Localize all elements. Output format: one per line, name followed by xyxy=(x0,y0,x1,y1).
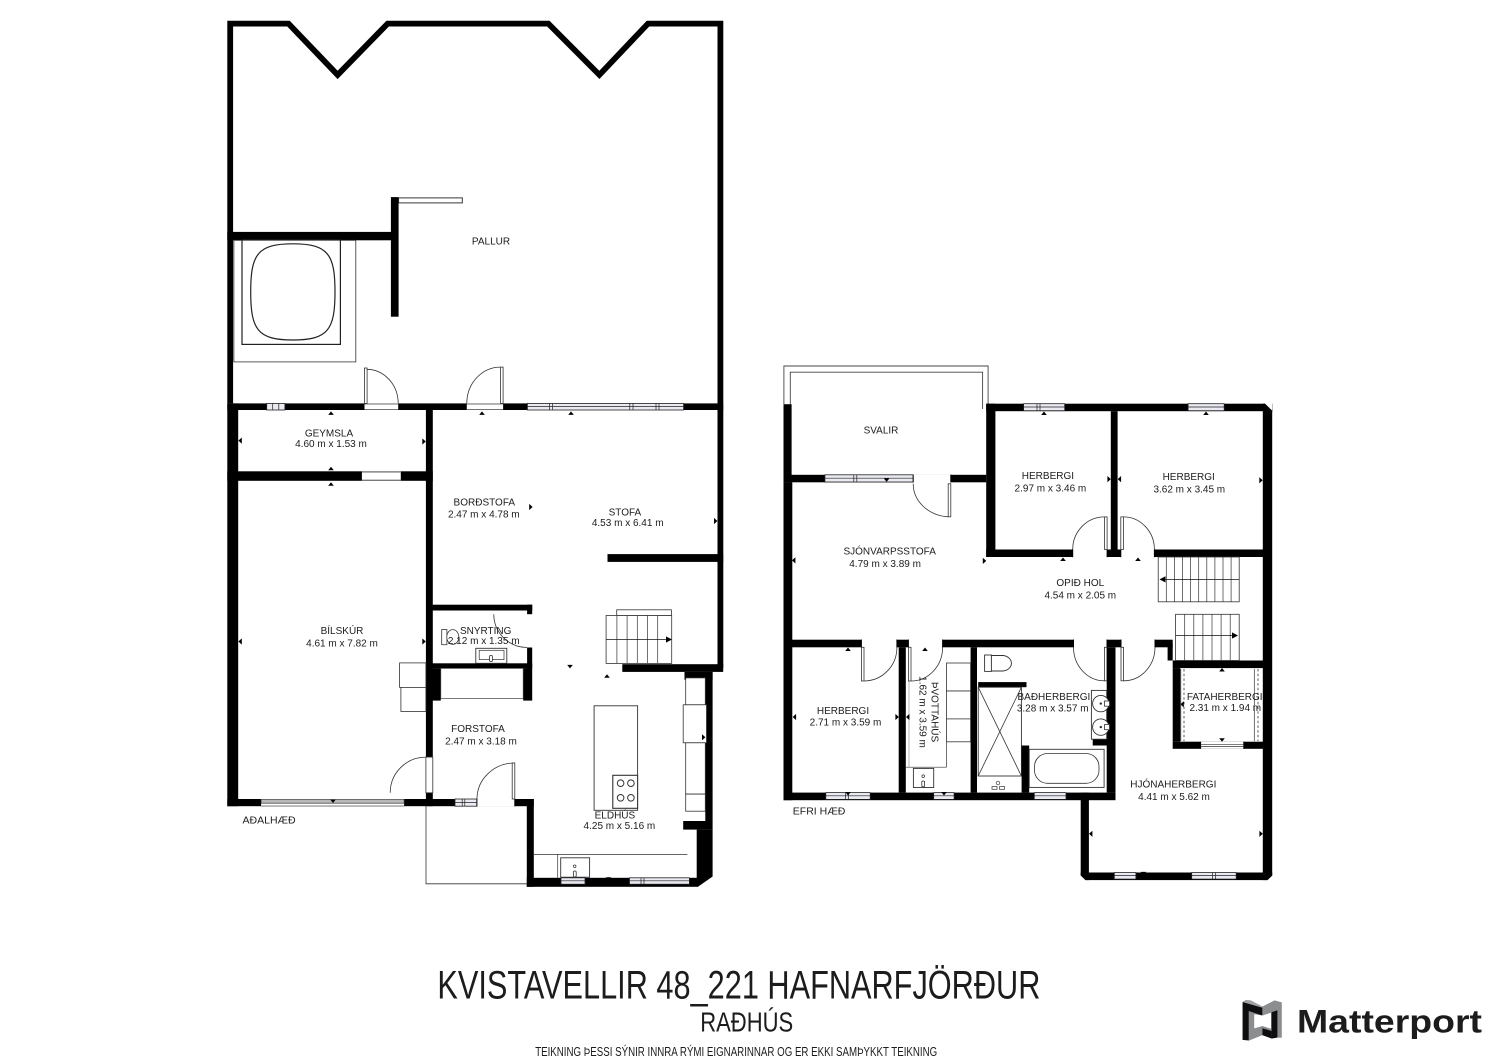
svg-text:4.79 m x 3.89 m: 4.79 m x 3.89 m xyxy=(849,559,921,570)
svg-text:2.47 m x 3.18 m: 2.47 m x 3.18 m xyxy=(445,737,517,748)
svg-text:HERBERGI: HERBERGI xyxy=(1022,471,1074,482)
svg-text:SJÓNVARPSSTOFA: SJÓNVARPSSTOFA xyxy=(843,545,936,558)
svg-text:2.12 m x 1.35 m: 2.12 m x 1.35 m xyxy=(448,636,520,647)
svg-text:4.54 m x 2.05 m: 4.54 m x 2.05 m xyxy=(1044,591,1116,602)
svg-text:4.53 m x 6.41 m: 4.53 m x 6.41 m xyxy=(592,518,664,529)
svg-text:GEYMSLA: GEYMSLA xyxy=(305,428,354,439)
svg-text:FORSTOFA: FORSTOFA xyxy=(451,724,505,735)
svg-text:4.41 m x 5.62 m: 4.41 m x 5.62 m xyxy=(1138,792,1210,803)
svg-text:FATAHERBERGI: FATAHERBERGI xyxy=(1187,692,1263,703)
svg-text:HJÓNAHERBERGI: HJÓNAHERBERGI xyxy=(1130,778,1216,791)
svg-text:2.97 m x 3.46 m: 2.97 m x 3.46 m xyxy=(1015,483,1087,494)
svg-text:OPIÐ HOL: OPIÐ HOL xyxy=(1056,578,1104,589)
svg-text:2.47 m x 4.78 m: 2.47 m x 4.78 m xyxy=(448,509,520,520)
svg-text:Matterport: Matterport xyxy=(1297,1003,1482,1039)
svg-text:BAÐHERBERGI: BAÐHERBERGI xyxy=(1018,692,1091,703)
svg-text:ELDHÚS: ELDHÚS xyxy=(595,808,636,821)
svg-text:RAÐHÚS: RAÐHÚS xyxy=(700,1006,793,1037)
svg-text:SVALIR: SVALIR xyxy=(864,426,899,437)
svg-text:BÍLSKÚR: BÍLSKÚR xyxy=(321,624,364,637)
svg-text:3.62 m x 3.45 m: 3.62 m x 3.45 m xyxy=(1153,485,1225,496)
svg-text:4.25 m x 5.16 m: 4.25 m x 5.16 m xyxy=(584,821,656,832)
svg-text:HERBERGI: HERBERGI xyxy=(817,706,869,717)
svg-text:BORÐSTOFA: BORÐSTOFA xyxy=(454,497,516,508)
svg-text:PALLUR: PALLUR xyxy=(472,237,510,248)
svg-text:HERBERGI: HERBERGI xyxy=(1163,472,1215,483)
svg-text:TEIKNING ÞESSI SÝNIR INNRA RÝM: TEIKNING ÞESSI SÝNIR INNRA RÝMI EIGNARIN… xyxy=(535,1044,937,1059)
svg-text:4.61 m x 7.82 m: 4.61 m x 7.82 m xyxy=(306,639,378,650)
svg-text:EFRI HÆÐ: EFRI HÆÐ xyxy=(793,805,846,817)
svg-text:AÐALHÆÐ: AÐALHÆÐ xyxy=(243,815,297,827)
svg-text:KVISTAVELLIR 48_221 HAFNARFJÖR: KVISTAVELLIR 48_221 HAFNARFJÖRÐUR xyxy=(437,963,1040,1007)
svg-text:2.71 m x 3.59 m: 2.71 m x 3.59 m xyxy=(810,718,882,729)
svg-text:ÞVOTTAHÚS: ÞVOTTAHÚS xyxy=(929,682,942,743)
svg-text:1.62 m x 3.59 m: 1.62 m x 3.59 m xyxy=(917,676,928,748)
svg-text:2.31 m x 1.94 m: 2.31 m x 1.94 m xyxy=(1189,703,1261,714)
svg-text:3.28 m x 3.57 m: 3.28 m x 3.57 m xyxy=(1017,704,1089,715)
svg-text:4.60 m x 1.53 m: 4.60 m x 1.53 m xyxy=(295,439,367,450)
